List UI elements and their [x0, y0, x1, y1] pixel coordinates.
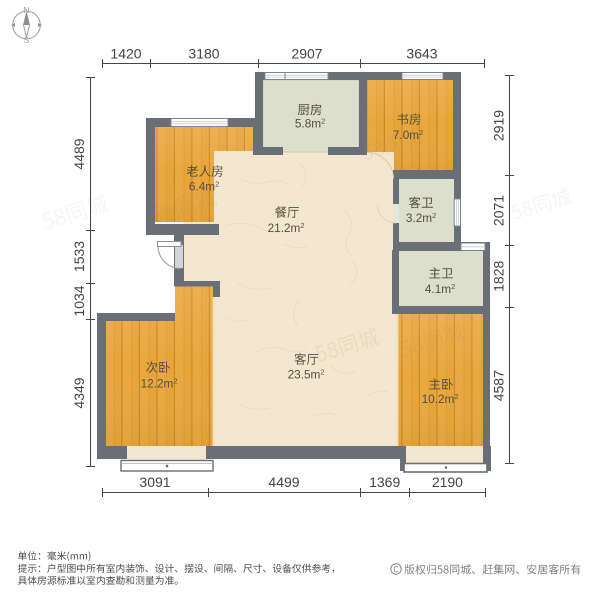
svg-text:3180: 3180 — [188, 46, 219, 62]
svg-text:4489: 4489 — [71, 138, 87, 169]
svg-text:2: 2 — [320, 368, 324, 377]
svg-text:2: 2 — [300, 221, 304, 230]
svg-text:2190: 2190 — [432, 474, 463, 490]
svg-text:1420: 1420 — [110, 46, 141, 62]
svg-text:2: 2 — [173, 377, 177, 386]
svg-text:7.0m: 7.0m — [393, 128, 419, 142]
svg-text:2071: 2071 — [491, 195, 507, 226]
svg-text:1828: 1828 — [491, 261, 507, 292]
svg-text:23.5m: 23.5m — [288, 368, 321, 382]
svg-text:2: 2 — [419, 128, 423, 137]
svg-text:4587: 4587 — [491, 370, 507, 401]
svg-text:1034: 1034 — [71, 285, 87, 316]
svg-text:4.1m: 4.1m — [425, 282, 451, 296]
svg-text:3091: 3091 — [139, 474, 170, 490]
svg-text:2: 2 — [454, 392, 458, 401]
svg-text:3643: 3643 — [406, 46, 437, 62]
svg-text:3.2m: 3.2m — [406, 211, 432, 225]
svg-text:2919: 2919 — [491, 110, 507, 141]
svg-text:2: 2 — [451, 282, 455, 291]
svg-text:2907: 2907 — [291, 46, 322, 62]
svg-text:S: S — [24, 35, 30, 45]
svg-text:21.2m: 21.2m — [268, 221, 301, 235]
svg-text:2: 2 — [321, 117, 325, 126]
svg-text:10.2m: 10.2m — [422, 392, 455, 406]
svg-text:5.8m: 5.8m — [295, 117, 321, 131]
svg-text:N: N — [23, 5, 29, 15]
svg-text:12.2m: 12.2m — [141, 377, 174, 391]
svg-text:1369: 1369 — [369, 474, 400, 490]
svg-text:4499: 4499 — [268, 474, 299, 490]
svg-text:6.4m: 6.4m — [189, 180, 215, 194]
svg-text:2: 2 — [215, 180, 219, 189]
svg-text:2: 2 — [432, 211, 436, 220]
svg-text:1533: 1533 — [71, 241, 87, 272]
svg-text:4349: 4349 — [71, 377, 87, 408]
